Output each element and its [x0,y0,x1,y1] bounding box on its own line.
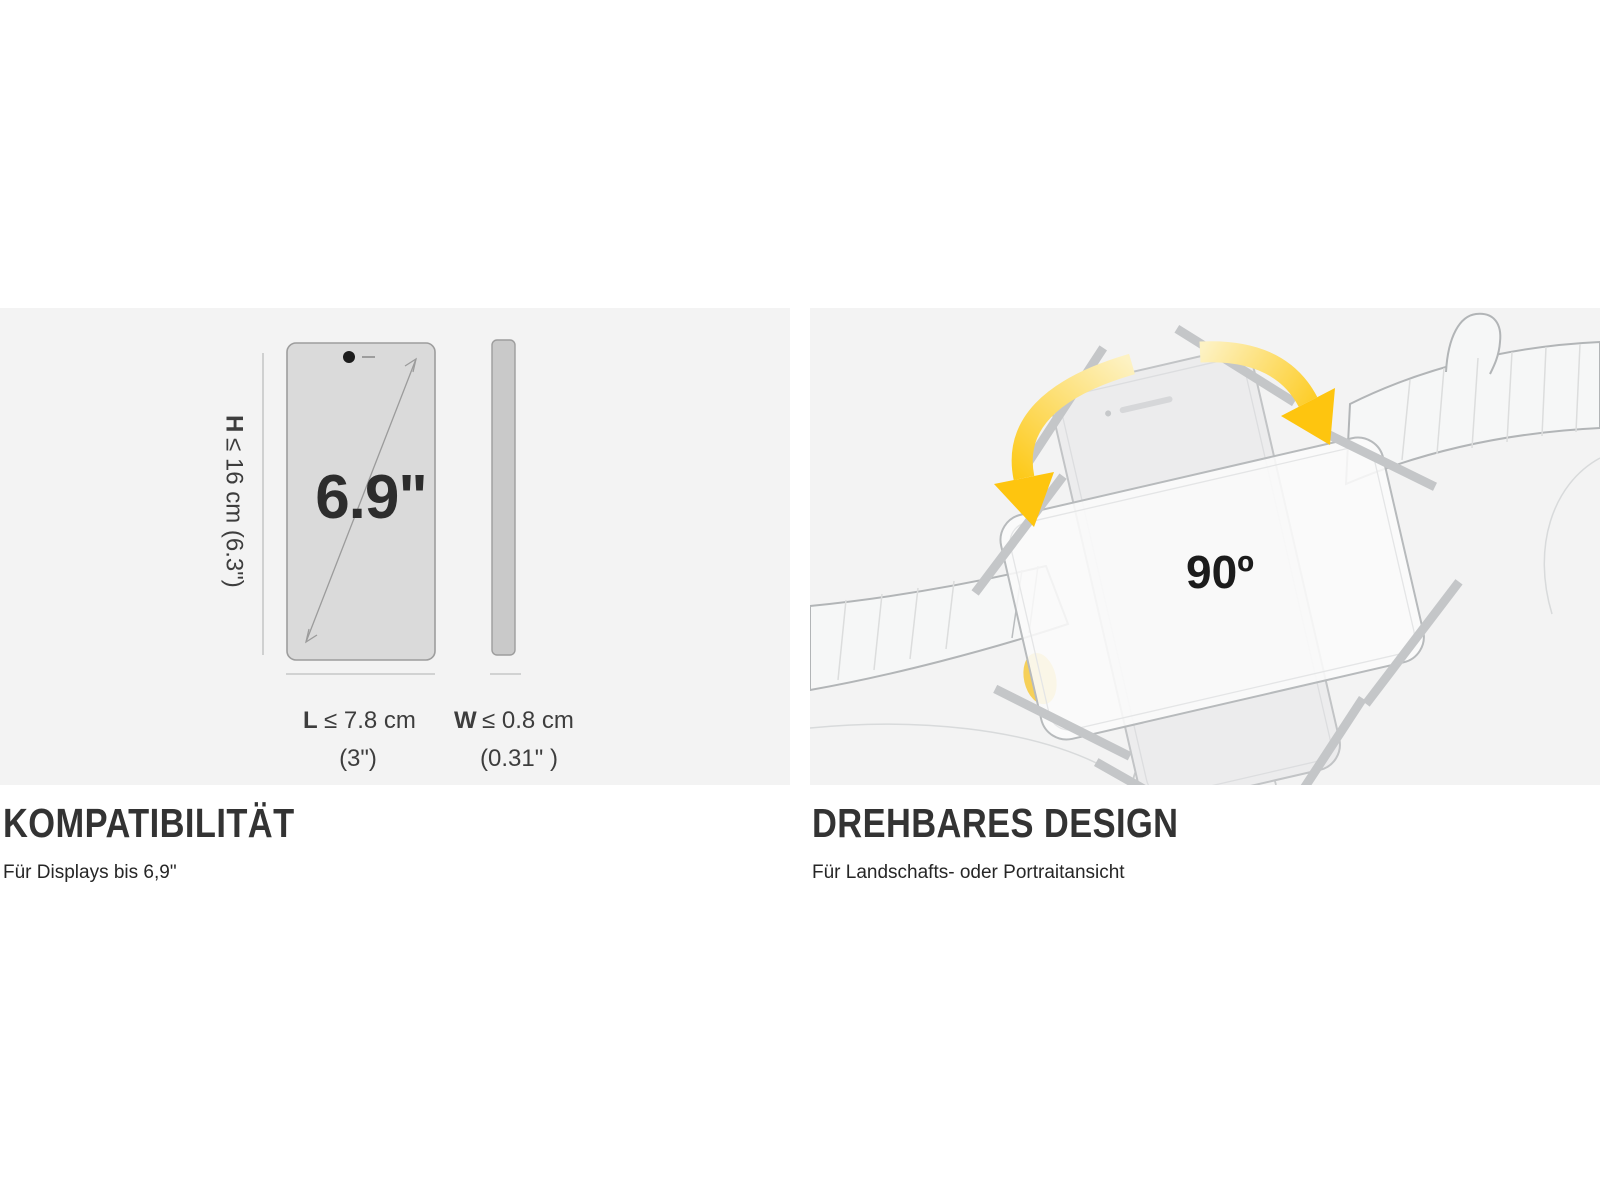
height-label-rest: ≤ 16 cm (6.3") [221,438,248,588]
width-label-prefix: W [454,707,477,734]
camera-dot-icon [343,351,355,363]
height-label: H ≤ 16 cm (6.3") [221,415,248,588]
width-label-rest: ≤ 0.8 cm [482,707,574,734]
compatibility-heading: KOMPATIBILITÄT [3,800,295,847]
rotatable-design-panel: 90º [810,308,1600,785]
compatibility-caption: Für Displays bis 6,9" [3,862,177,884]
rotation-angle-label: 90º [1186,546,1254,598]
length-label-prefix: L [303,707,318,734]
height-label-prefix: H [221,415,248,432]
width-label-sub: (0.31" ) [480,745,558,772]
phone-dimensions-diagram: H ≤ 16 cm (6.3") 6.9" L ≤ 7.8 cm (3") W … [0,308,790,785]
length-label-sub: (3") [339,745,377,772]
length-label-rest: ≤ 7.8 cm [324,707,416,734]
phone-side-view [492,340,515,655]
rotation-diagram: 90º [810,308,1600,785]
screen-size-value: 6.9" [315,463,427,532]
rotatable-caption: Für Landschafts- oder Portraitansicht [812,862,1125,884]
compatibility-panel: H ≤ 16 cm (6.3") 6.9" L ≤ 7.8 cm (3") W … [0,308,790,785]
brake-hood-bump [1446,314,1500,374]
handlebar-curve-faint-right [1544,458,1600,614]
rotatable-heading: DREHBARES DESIGN [812,800,1178,847]
